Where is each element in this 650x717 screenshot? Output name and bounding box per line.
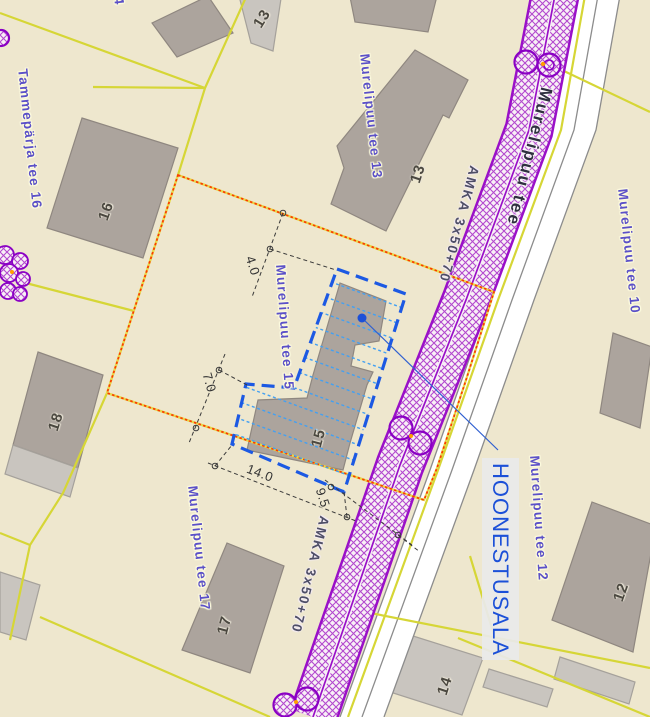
building-footprint <box>152 0 233 57</box>
utility-symbol <box>0 30 9 46</box>
building-footprint <box>182 543 284 673</box>
building-footprint <box>554 657 635 704</box>
building-footprint <box>483 669 553 707</box>
building-footprint <box>0 572 40 640</box>
map-canvas[interactable]: Tammepärja tee 16 Murelipuu tee 13 Murel… <box>0 0 650 717</box>
building-area-annotation: HOONESTUSALA <box>482 458 519 660</box>
building-footprint <box>238 0 282 51</box>
building-footprint <box>552 502 650 652</box>
building-footprint <box>349 0 437 32</box>
building-footprint <box>600 333 650 428</box>
building-area-annotation-text: HOONESTUSALA <box>487 463 513 656</box>
utility-symbol-cluster <box>0 246 30 301</box>
building-footprint <box>331 50 468 231</box>
map-graphics <box>0 0 650 717</box>
annotation-point <box>358 314 367 323</box>
